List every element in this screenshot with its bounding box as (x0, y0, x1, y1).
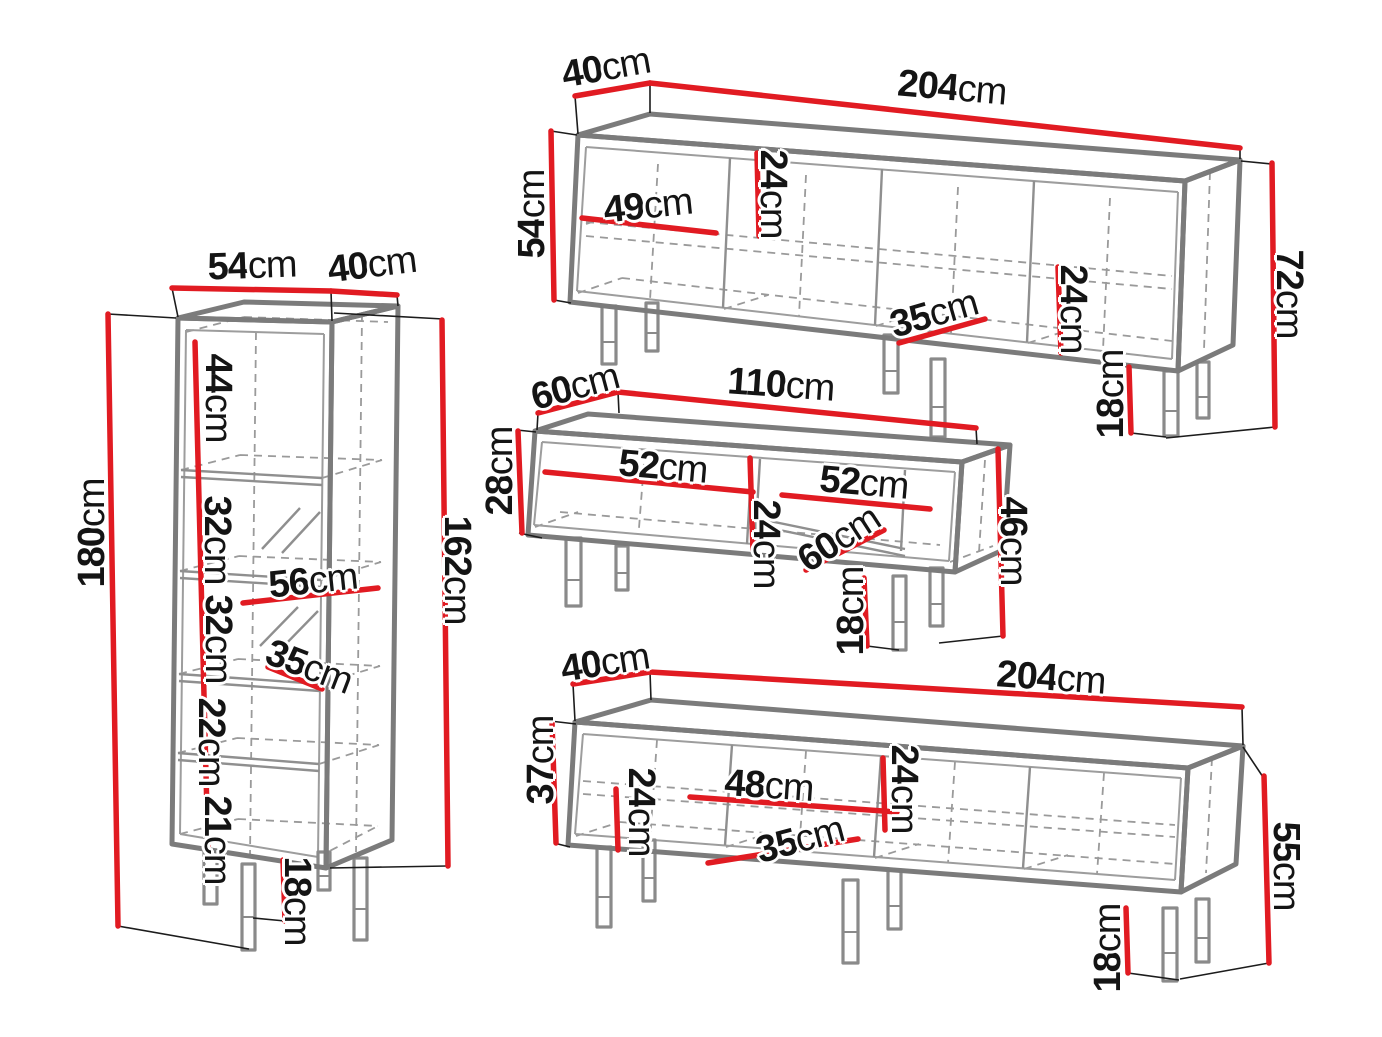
dim-bottom-sideboard-compartment-48cm: 48cm (723, 764, 814, 808)
dim-bottom-sideboard-height-37cm: 37cm (522, 716, 560, 805)
dim-top-sideboard-inner-height-24cm-2: 24cm (1054, 265, 1092, 354)
dim-top-sideboard-inner-height-24cm-1: 24cm (754, 150, 792, 239)
dim-bottom-sideboard-inner-height-24cm-2: 24cm (885, 745, 923, 834)
dim-cabinet-body-height-162cm: 162cm (438, 515, 476, 624)
furniture-dimension-diagram: 54cm 40cm 180cm 44cm 32cm 56cm 32cm 35cm… (0, 0, 1382, 1037)
dim-tv-stand-leg-18cm: 18cm (832, 567, 870, 656)
dim-cabinet-depth-40cm: 40cm (326, 241, 419, 290)
dim-bottom-sideboard-total-height-55cm: 55cm (1267, 822, 1305, 911)
dim-top-sideboard-width-204cm: 204cm (896, 64, 1008, 111)
dim-top-sideboard-total-height-72cm: 72cm (1270, 250, 1308, 339)
dim-cabinet-width-54cm: 54cm (207, 245, 297, 286)
dim-tv-stand-compartment-52cm-left: 52cm (617, 444, 709, 490)
dim-bottom-sideboard-inner-height-24cm-1: 24cm (622, 768, 660, 857)
dim-tv-stand-height-28cm: 28cm (481, 427, 519, 516)
top-sideboard-wireframe (570, 114, 1240, 437)
dim-cabinet-total-height-180cm: 180cm (73, 478, 111, 587)
dim-top-sideboard-height-54cm: 54cm (513, 170, 551, 259)
dim-cabinet-leg-18cm: 18cm (278, 857, 316, 946)
dim-cabinet-shelf-21cm: 21cm (198, 796, 236, 885)
dim-bottom-sideboard-leg-18cm: 18cm (1089, 904, 1127, 993)
dim-cabinet-shelf-44cm: 44cm (199, 354, 237, 443)
dim-tv-stand-inner-height-24cm: 24cm (747, 500, 785, 589)
dim-cabinet-shelf-32cm-1: 32cm (198, 496, 236, 585)
dim-tv-stand-total-height-46cm: 46cm (994, 497, 1032, 586)
bottom-sideboard-wireframe (568, 700, 1243, 981)
dim-cabinet-shelf-32cm-2: 32cm (199, 595, 237, 684)
dim-top-sideboard-compartment-49cm: 49cm (602, 182, 694, 229)
dim-tv-stand-width-110cm: 110cm (726, 362, 835, 407)
dim-top-sideboard-leg-18cm: 18cm (1092, 350, 1130, 439)
dim-bottom-sideboard-width-204cm: 204cm (995, 655, 1106, 701)
dim-cabinet-inner-width-56cm: 56cm (267, 557, 359, 604)
dim-cabinet-shelf-22cm: 22cm (192, 698, 230, 787)
